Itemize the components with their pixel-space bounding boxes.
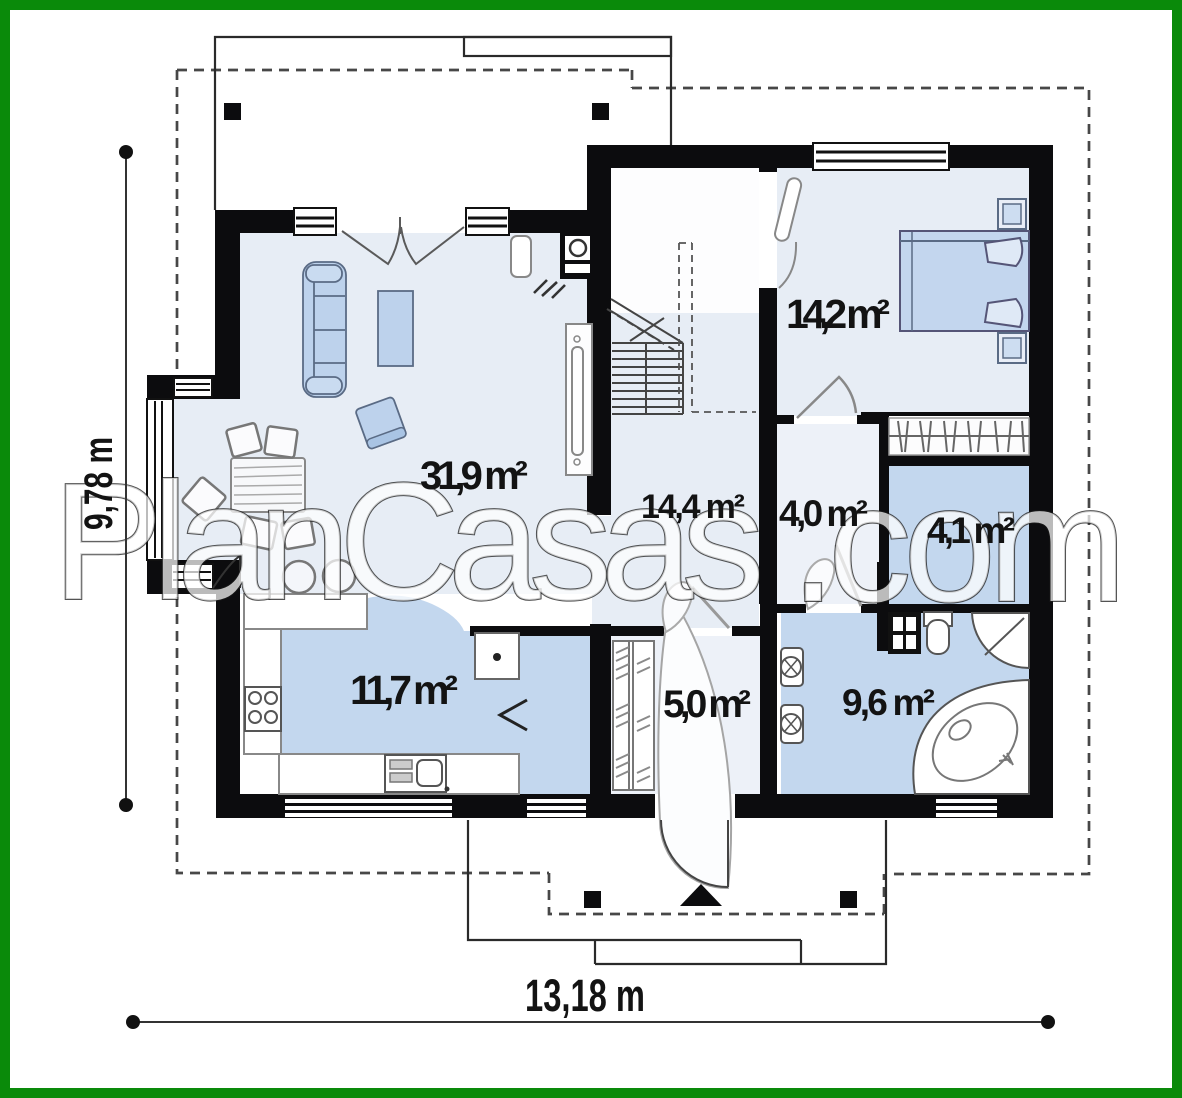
svg-text:11,7 m²: 11,7 m²: [350, 667, 458, 713]
svg-text:9,78 m: 9,78 m: [77, 437, 121, 530]
svg-text:14,4 m²: 14,4 m²: [641, 488, 745, 526]
svg-text:PlanCasas: PlanCasas: [52, 449, 765, 635]
svg-text:9,6 m²: 9,6 m²: [842, 682, 935, 723]
svg-text:14,2 m²: 14,2 m²: [786, 291, 890, 337]
svg-text:13,18 m: 13,18 m: [525, 970, 645, 1021]
svg-text:4,0 m²: 4,0 m²: [779, 493, 868, 534]
svg-text:31,9 m²: 31,9 m²: [420, 454, 528, 498]
svg-text:4,1 m²: 4,1 m²: [927, 510, 1015, 551]
svg-text:5,0 m²: 5,0 m²: [663, 683, 751, 726]
